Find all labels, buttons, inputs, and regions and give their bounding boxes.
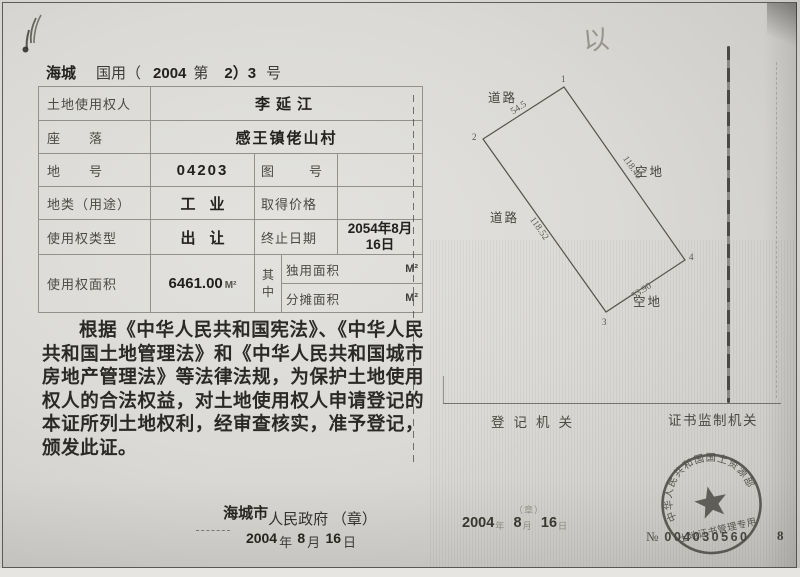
handwritten-mark: 以	[581, 19, 611, 59]
shared-label: 分摊面积	[286, 289, 340, 308]
use-type-value: 工业	[151, 187, 255, 220]
sup-date-day: 16	[541, 515, 557, 531]
sup-date-month: 8	[514, 515, 522, 531]
table-row: 座 落 感王镇佬山村	[39, 121, 423, 154]
legal-statement-paragraph: 根据《中华人民共和国宪法》、《中华人民共和国土地管理法》和《中华人民共和国城市房…	[42, 320, 424, 461]
area-label: 使用权面积	[39, 255, 151, 313]
serial-prefix: №	[646, 529, 658, 544]
vacant-label-bottom: 空地	[633, 295, 662, 309]
exclusive-unit: M²	[405, 263, 418, 275]
table-row: 使用权类型 出让 终止日期 2054年8月16日	[39, 220, 423, 255]
issue-yue: 月	[307, 535, 320, 550]
sup-date-yue: 月	[523, 521, 532, 531]
pen-squiggle-mark	[6, 8, 52, 58]
cert-region: 海城	[46, 62, 76, 83]
corner-point-3: 3	[602, 317, 607, 327]
cert-no-label: 第	[193, 62, 208, 83]
diagram-frame-bottom-line	[443, 403, 781, 404]
price-value-empty	[338, 187, 423, 220]
supervision-authority-label: 证书监制机关	[668, 409, 758, 429]
certificate-number-line: 海城 国用（ 2004 第 2）3 号	[46, 62, 281, 83]
star-icon	[692, 483, 730, 520]
table-row: 地 号 04203 图 号	[39, 154, 423, 187]
scan-corner-shadow	[767, 3, 797, 51]
shared-unit: M²	[405, 292, 418, 304]
cert-serial: 2）3	[224, 62, 256, 83]
road-label-top: 道路	[488, 90, 517, 105]
issue-ri: 日	[343, 535, 356, 550]
issue-month: 8	[297, 530, 305, 546]
plot-no-label: 地 号	[39, 154, 151, 187]
road-label-left: 道路	[490, 210, 519, 225]
corner-point-1: 1	[561, 74, 566, 84]
certificate-serial-number: №004030560	[646, 529, 749, 545]
exclusive-area-cell: 独用面积 M²	[282, 255, 423, 284]
page-fold-line	[413, 95, 414, 463]
right-type-value: 出让	[151, 220, 255, 255]
issue-date-line: 2004年 8月 16日	[185, 532, 415, 551]
price-label: 取得价格	[255, 187, 338, 220]
issuer-gov: 人民政府	[268, 512, 328, 528]
page-number: 8	[777, 528, 784, 544]
page-edge-dashed-line	[776, 62, 777, 398]
corner-point-4: 4	[689, 252, 694, 262]
issuer-city: 海城市	[223, 505, 268, 522]
exclusive-label: 独用面积	[286, 260, 340, 279]
holder-value: 李延江	[151, 87, 423, 121]
cert-year: 2004	[153, 65, 186, 82]
area-unit: M²	[225, 280, 237, 291]
location-label: 座 落	[39, 121, 151, 154]
end-date-value: 2054年8月16日	[338, 220, 423, 255]
table-row: 地类（用途） 工业 取得价格	[39, 187, 423, 220]
area-value: 6461.00	[169, 275, 223, 292]
qizhong-label: 其中	[255, 255, 282, 313]
right-type-label: 使用权类型	[39, 220, 151, 255]
holder-label: 土地使用权人	[39, 87, 151, 121]
issuer-seal-note: （章）	[332, 512, 377, 528]
serial-digits: 004030560	[664, 530, 749, 544]
issue-day: 16	[325, 530, 341, 546]
location-value: 感王镇佬山村	[151, 121, 423, 154]
corner-point-2: 2	[472, 132, 477, 142]
issuer-line: 海城市人民政府 （章）	[185, 508, 415, 529]
cert-hao-label: 号	[266, 62, 281, 83]
sup-date-nian: 年	[495, 521, 504, 531]
end-date-label: 终止日期	[255, 220, 338, 255]
fill-in-dash-line	[196, 530, 230, 531]
issue-nian: 年	[279, 535, 292, 550]
parcel-plot-diagram: 1 2 3 4 54.5 118.40 118.52 53.90 道路 道路 空…	[440, 60, 770, 340]
certificate-fields-table: 土地使用权人 李延江 座 落 感王镇佬山村 地 号 04203 图 号 地类（用…	[38, 86, 423, 313]
table-row: 土地使用权人 李延江	[39, 87, 423, 121]
map-no-value-empty	[338, 154, 423, 187]
shared-area-cell: 分摊面积 M²	[282, 284, 423, 313]
sup-date-year: 2004	[462, 515, 494, 531]
vacant-label-right: 空地	[635, 165, 664, 179]
table-row: 使用权面积 6461.00 M² 其中 独用面积 M²	[39, 255, 423, 284]
supervision-date-line: 2004年 8月 16日	[462, 515, 573, 531]
issue-year: 2004	[246, 530, 277, 546]
plot-no-value: 04203	[151, 154, 255, 187]
registry-authority-label: 登记机关	[491, 411, 581, 431]
official-seal: 中华人民共和国国土资源部 土地证书管理专用	[648, 442, 776, 570]
parcel-boundary	[483, 87, 685, 312]
sup-date-ri: 日	[558, 521, 567, 531]
cert-type-label: 国用（	[96, 62, 141, 83]
diagram-frame-left-tick	[443, 376, 444, 403]
use-type-label: 地类（用途）	[39, 187, 151, 220]
map-no-label: 图 号	[255, 154, 338, 187]
area-value-cell: 6461.00 M²	[151, 255, 255, 313]
